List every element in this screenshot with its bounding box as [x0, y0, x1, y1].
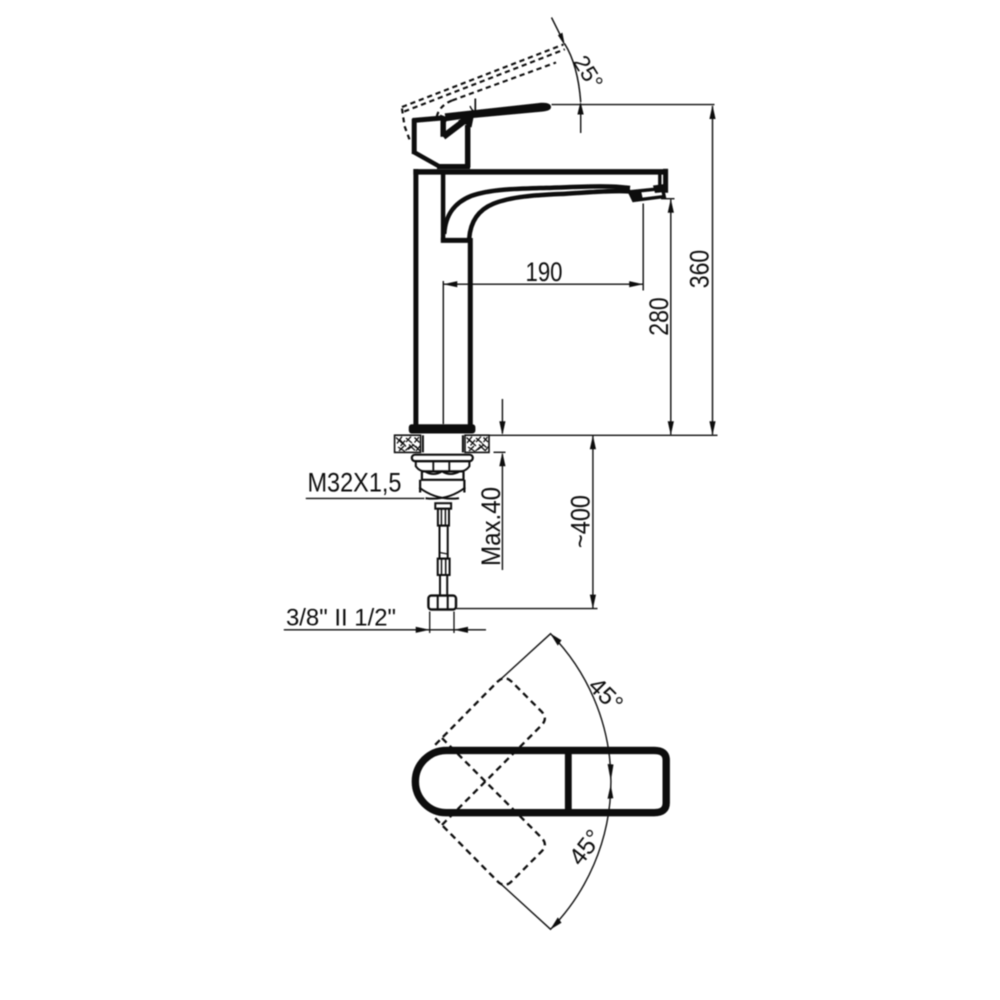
svg-text:Max.40: Max.40 [476, 487, 506, 566]
svg-text:~400: ~400 [566, 495, 596, 548]
svg-text:3/8" II 1/2": 3/8" II 1/2" [286, 605, 396, 632]
svg-text:280: 280 [644, 297, 674, 336]
svg-text:190: 190 [526, 257, 563, 287]
svg-text:360: 360 [685, 250, 715, 289]
svg-text:M32X1,5: M32X1,5 [308, 468, 402, 498]
